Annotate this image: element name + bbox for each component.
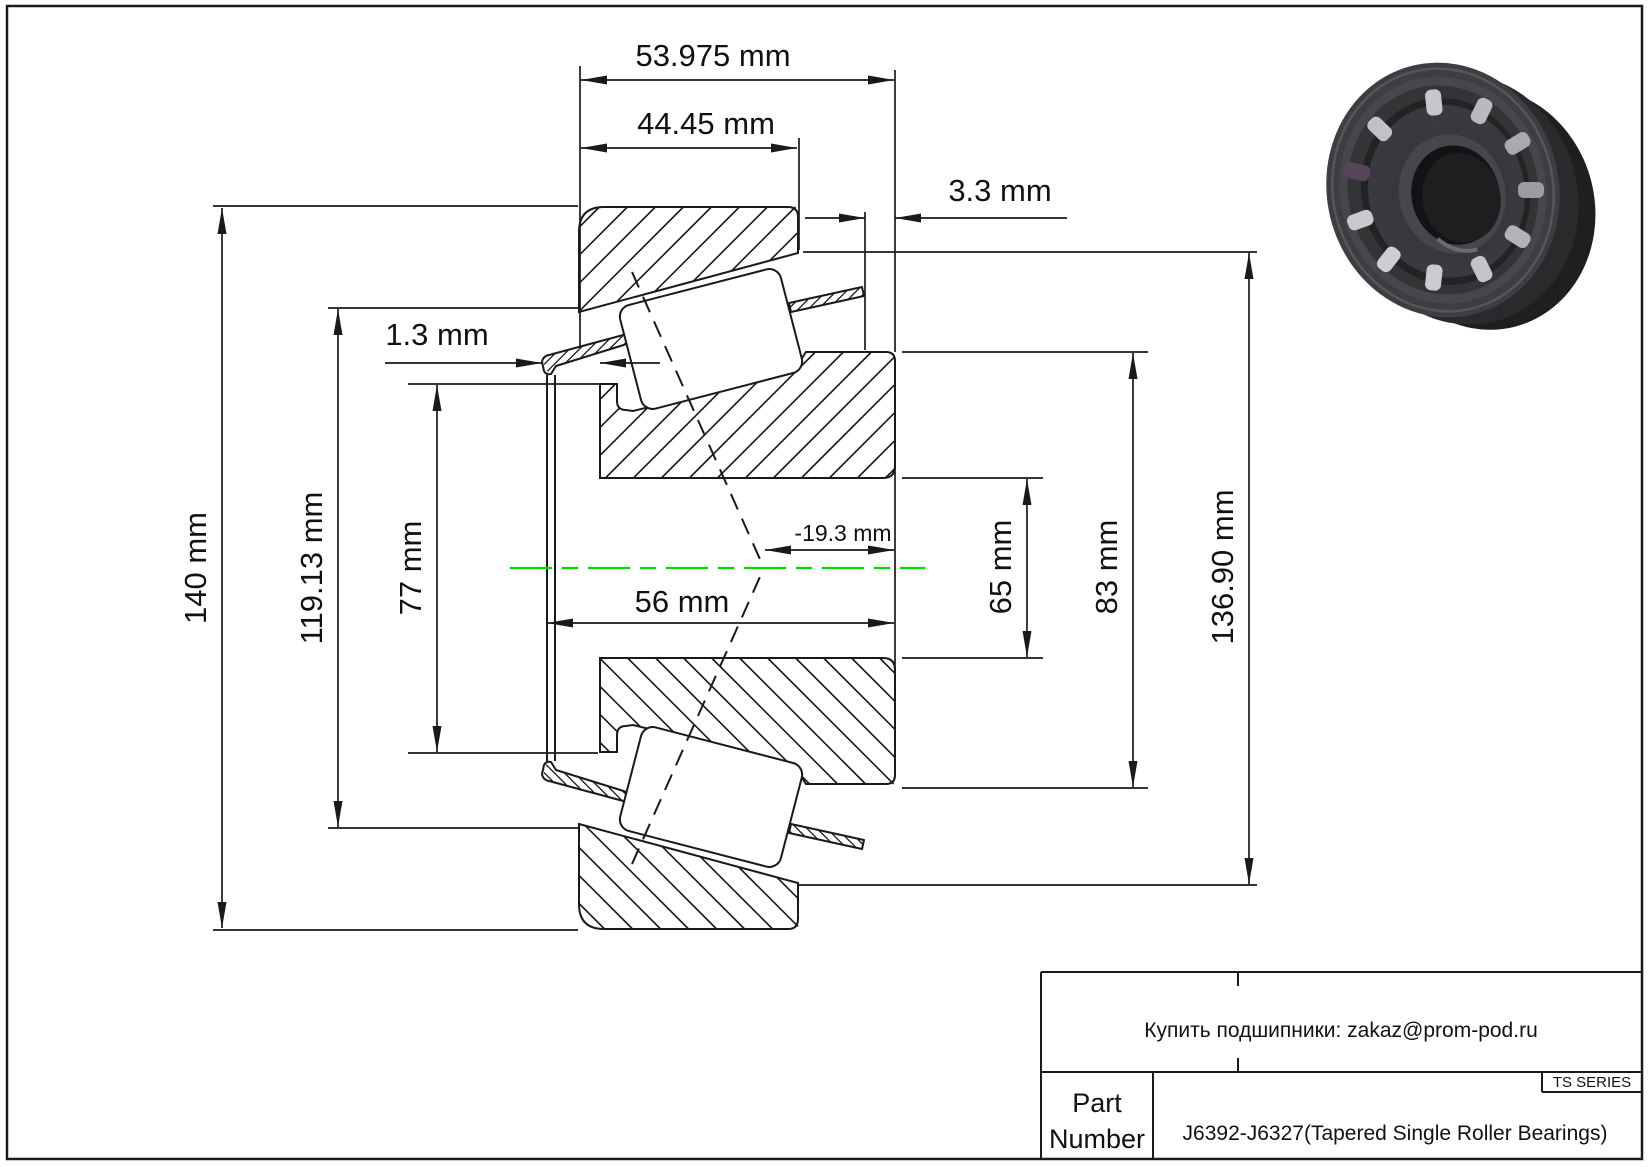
dim-label-cup-width: 44.45 mm bbox=[637, 106, 775, 141]
dim-label-cup-standout: 3.3 mm bbox=[948, 173, 1051, 208]
part-label-line1: Part bbox=[1072, 1088, 1122, 1118]
drawing-canvas: 53.975 mm 44.45 mm 3.3 mm 1.3 mm 56 mm -… bbox=[0, 0, 1649, 1167]
dim-label-cone-back-diameter: 83 mm bbox=[1089, 520, 1124, 615]
dim-label-effective-center: -19.3 mm bbox=[794, 520, 891, 546]
dim-label-cone-width: 56 mm bbox=[635, 584, 730, 619]
supplier-contact-text: Купить подшипники: zakaz@prom-pod.ru bbox=[1144, 1019, 1538, 1042]
series-label: TS SERIES bbox=[1553, 1074, 1631, 1091]
dim-label-cup-back-inner-diameter: 136.90 mm bbox=[1205, 489, 1240, 644]
dim-label-bore-diameter: 65 mm bbox=[983, 520, 1018, 615]
dim-label-cup-front-inner-diameter: 119.13 mm bbox=[294, 492, 329, 645]
cage-strip-bottom-right bbox=[789, 824, 864, 849]
bearing-3d-image bbox=[1299, 30, 1620, 363]
cage-strip-top-right bbox=[789, 287, 864, 312]
dim-label-cone-rib-diameter: 77 mm bbox=[393, 521, 428, 616]
dim-label-outer-diameter: 140 mm bbox=[178, 512, 213, 624]
dim-label-total-width: 53.975 mm bbox=[635, 38, 790, 73]
drawing-sheet: 53.975 mm 44.45 mm 3.3 mm 1.3 mm 56 mm -… bbox=[0, 0, 1649, 1167]
title-block-text: Купить подшипники: zakaz@prom-pod.ru Par… bbox=[1049, 1019, 1631, 1154]
part-label-line2: Number bbox=[1049, 1124, 1145, 1154]
part-number-value: J6392-J6327(Tapered Single Roller Bearin… bbox=[1183, 1122, 1608, 1145]
dim-label-flinger-offset: 1.3 mm bbox=[385, 317, 488, 352]
